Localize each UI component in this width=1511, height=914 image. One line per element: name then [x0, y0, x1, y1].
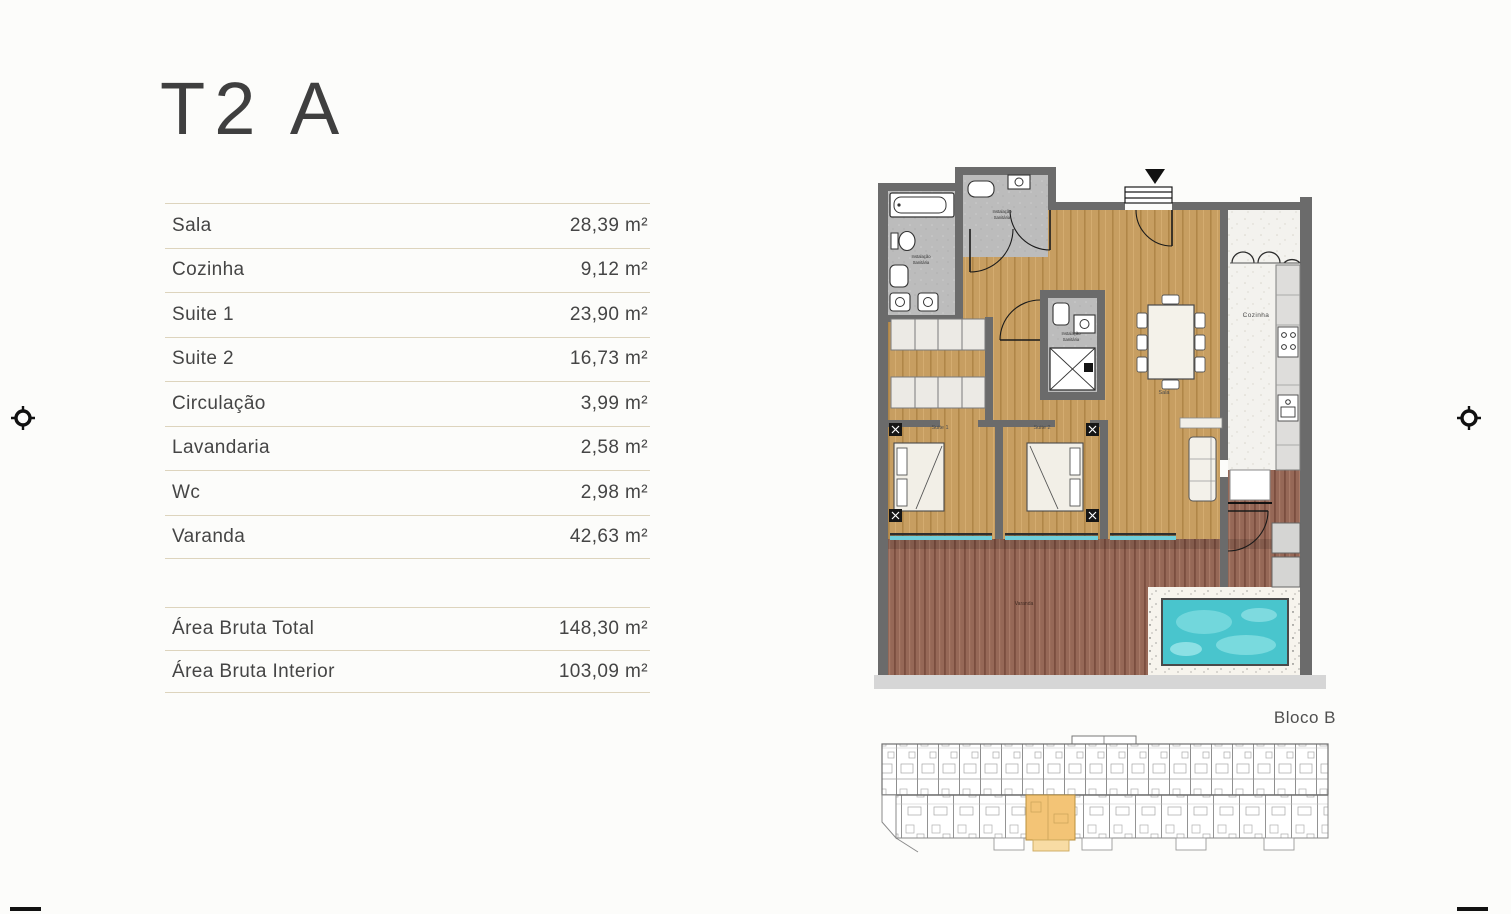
totals-row: Área Bruta Interior103,09 m²	[165, 650, 650, 693]
svg-text:Sanitária: Sanitária	[913, 260, 930, 265]
toilet-icon	[891, 232, 915, 251]
row-label: Sala	[165, 215, 212, 237]
building-outline	[882, 736, 1328, 852]
bathtub-icon	[890, 193, 954, 217]
crop-mark	[10, 907, 41, 911]
window-lines	[890, 533, 1176, 540]
registration-mark	[10, 405, 36, 431]
sink-icon	[968, 181, 994, 197]
sideboard-icon	[1180, 418, 1222, 428]
crop-mark	[1457, 907, 1488, 911]
highlighted-unit	[1026, 795, 1075, 851]
floorplan-drawing: Cozinha Suite 1 Suite 2 Sala Varanda Ins…	[874, 167, 1326, 689]
row-label: Área Bruta Interior	[165, 661, 335, 683]
row-label: Suite 2	[165, 348, 234, 370]
row-label: Wc	[165, 482, 200, 504]
sink-icon	[890, 265, 908, 287]
row-value: 16,73 m²	[570, 348, 650, 370]
sofa-icon	[1189, 437, 1216, 501]
svg-text:Sanitária: Sanitária	[994, 215, 1011, 220]
room-label-balcony: Varanda	[1015, 601, 1034, 607]
registration-mark	[1456, 405, 1482, 431]
row-value: 3,99 m²	[581, 393, 650, 415]
svg-text:Sanitária: Sanitária	[1063, 337, 1080, 342]
row-value: 9,12 m²	[581, 259, 650, 281]
room-label-bathroom: Instalação	[992, 209, 1012, 214]
room-label-kitchen: Cozinha	[1243, 312, 1270, 319]
table-row: Suite 216,73 m²	[165, 337, 650, 382]
table-row: Circulação3,99 m²	[165, 381, 650, 426]
bed-icon	[894, 443, 944, 511]
room-label-bathroom: Instalação	[1061, 331, 1081, 336]
row-value: 28,39 m²	[570, 215, 650, 237]
area-table: Sala28,39 m² Cozinha9,12 m² Suite 123,90…	[165, 203, 650, 559]
pool	[1162, 599, 1288, 665]
toilet-icon	[1008, 175, 1030, 189]
row-value: 2,58 m²	[581, 437, 650, 459]
table-row: Wc2,98 m²	[165, 470, 650, 515]
bloco-label: Bloco B	[1140, 708, 1336, 728]
row-value: 2,98 m²	[581, 482, 650, 504]
shower-icon	[1050, 348, 1095, 390]
row-label: Suite 1	[165, 304, 234, 326]
row-label: Varanda	[165, 526, 245, 548]
row-value: 148,30 m²	[559, 618, 650, 640]
kitchen-sink-icon	[1278, 395, 1298, 421]
row-label: Circulação	[165, 393, 266, 415]
row-label: Cozinha	[165, 259, 245, 281]
row-value: 23,90 m²	[570, 304, 650, 326]
row-value: 103,09 m²	[559, 661, 650, 683]
room-label-living: Sala	[1158, 390, 1170, 396]
row-value: 42,63 m²	[570, 526, 650, 548]
table-row: Cozinha9,12 m²	[165, 248, 650, 293]
entrance-arrow-icon	[1125, 169, 1172, 203]
room-label-suite2: Suite 2	[1033, 425, 1050, 431]
totals-table: Área Bruta Total148,30 m² Área Bruta Int…	[165, 607, 650, 693]
table-row: Varanda42,63 m²	[165, 515, 650, 560]
room-label-bathroom: Instalação	[911, 254, 931, 259]
room-label-suite1: Suite 1	[931, 425, 948, 431]
brochure-page: T2 A Sala28,39 m² Cozinha9,12 m² Suite 1…	[0, 0, 1511, 914]
page-title: T2 A	[160, 72, 348, 146]
table-row: Sala28,39 m²	[165, 203, 650, 248]
site-key-plan	[876, 734, 1332, 860]
table-row: Lavandaria2,58 m²	[165, 426, 650, 471]
totals-row: Área Bruta Total148,30 m²	[165, 607, 650, 650]
table-row: Suite 123,90 m²	[165, 292, 650, 337]
stove-icon	[1278, 327, 1298, 357]
bed-icon	[1027, 443, 1083, 511]
sink-icon	[1053, 303, 1069, 325]
balcony-parapet	[874, 675, 1326, 689]
row-label: Área Bruta Total	[165, 618, 314, 640]
row-label: Lavandaria	[165, 437, 270, 459]
